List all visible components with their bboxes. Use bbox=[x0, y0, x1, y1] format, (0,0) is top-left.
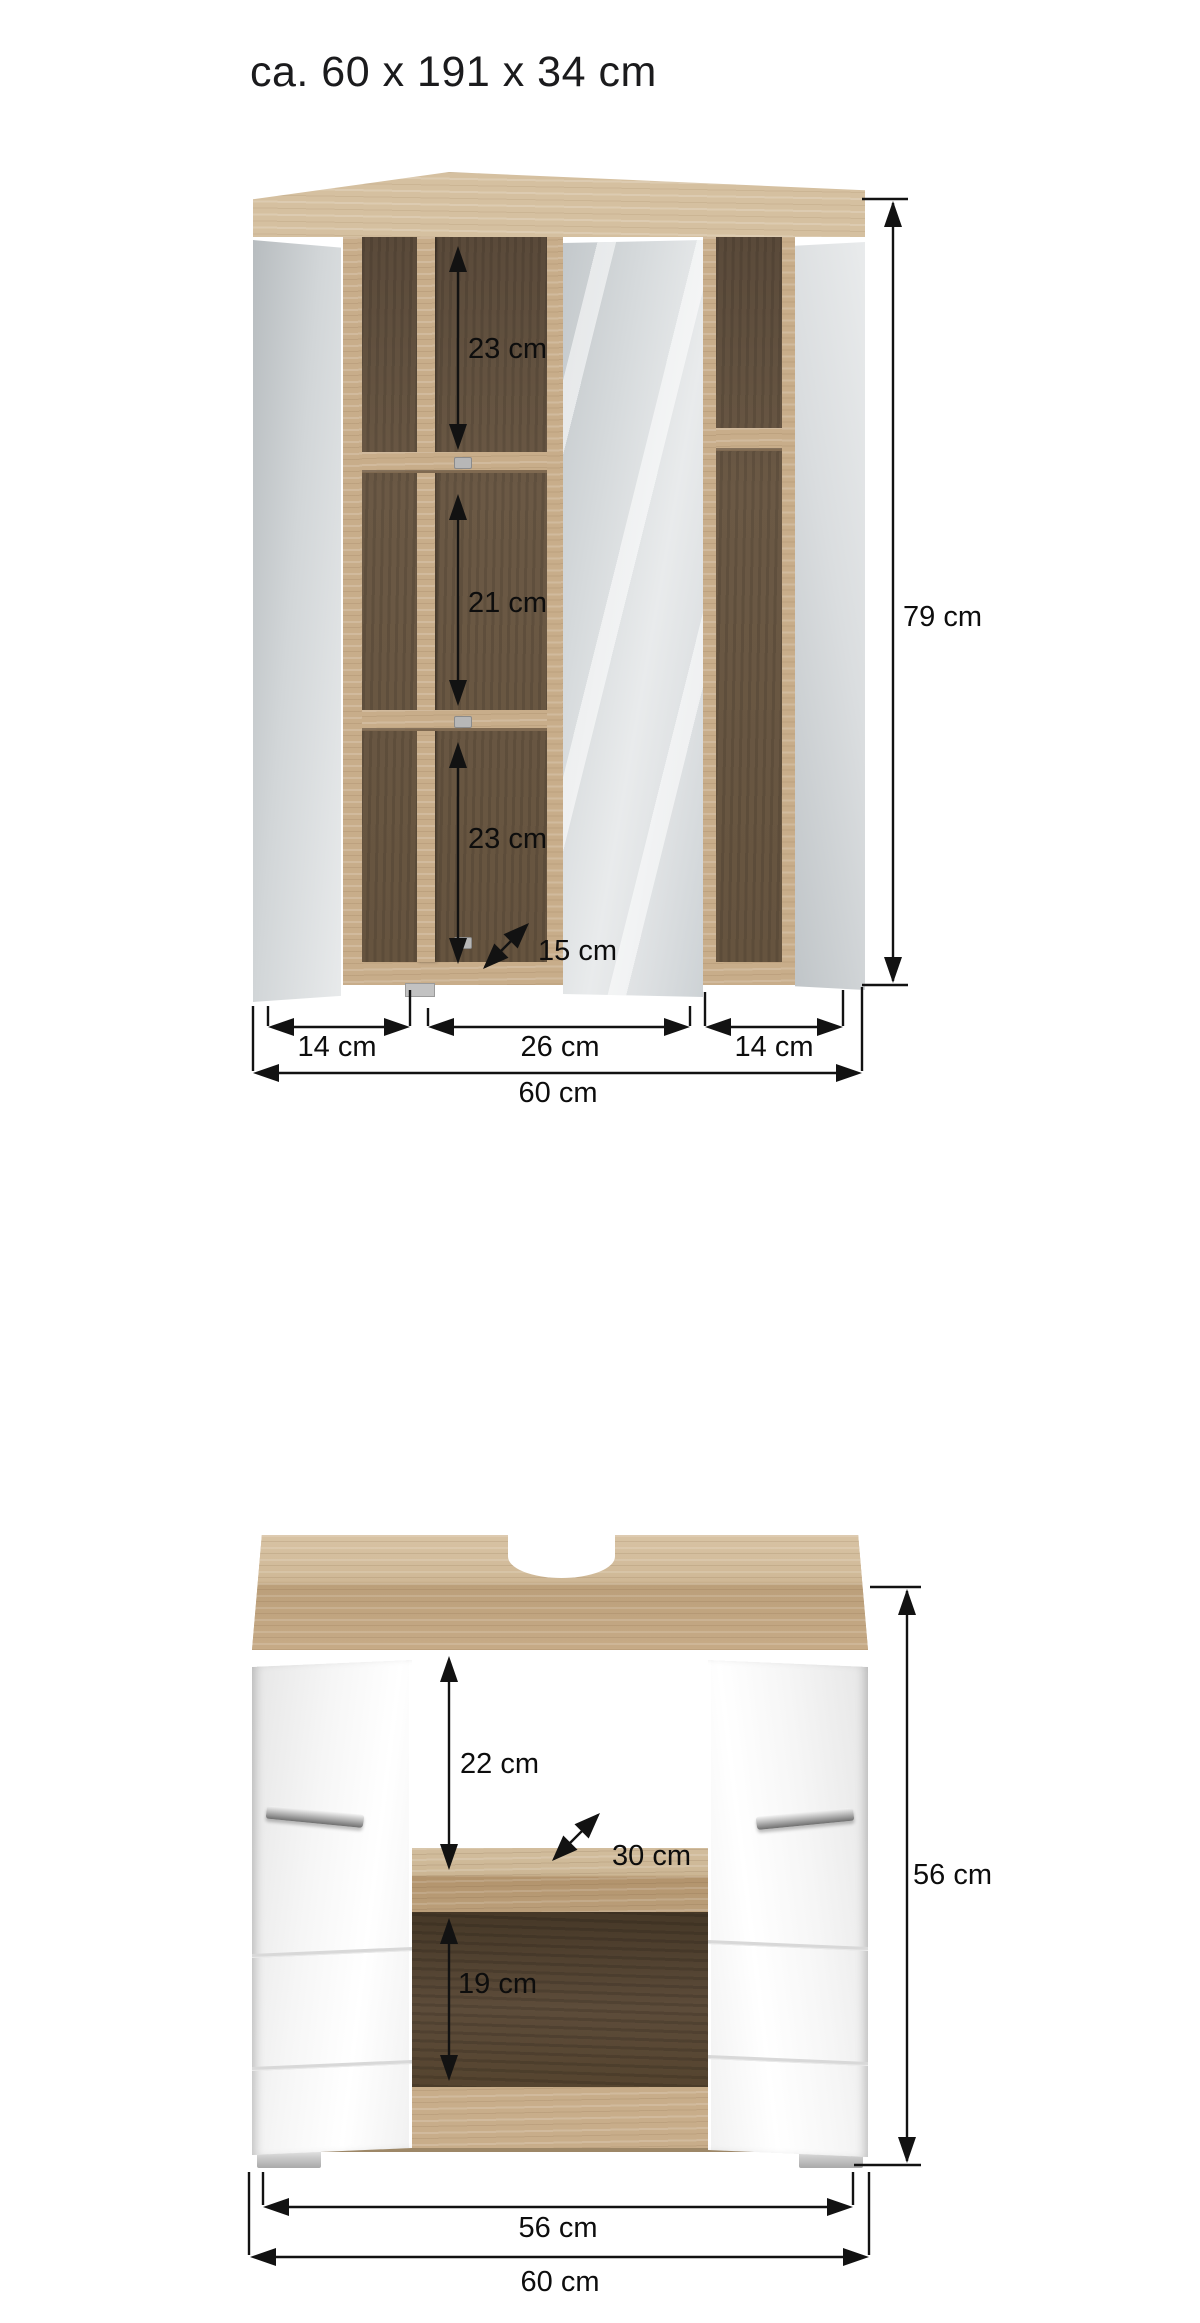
vanity-left-door bbox=[252, 1660, 412, 2155]
dim-label-inner-width: 56 cm bbox=[498, 2212, 618, 2244]
dim-label-shelf-gap-1: 23 cm bbox=[468, 333, 547, 365]
dim-label-depth: 15 cm bbox=[538, 935, 617, 967]
mirror-cabinet-top-panel bbox=[253, 172, 865, 237]
door-groove bbox=[252, 1947, 412, 1958]
dim-label-width-right: 14 cm bbox=[714, 1031, 834, 1063]
hinge-icon bbox=[454, 716, 472, 728]
page-title: ca. 60 x 191 x 34 cm bbox=[250, 48, 657, 96]
dim-label-width-left: 14 cm bbox=[277, 1031, 397, 1063]
door-groove bbox=[252, 2060, 412, 2071]
dim-label-total-width: 60 cm bbox=[498, 1077, 618, 1109]
dimension-diagram-page: ca. 60 x 191 x 34 cm bbox=[0, 0, 1200, 2323]
dim-label-total-width: 60 cm bbox=[500, 2266, 620, 2298]
hinge-icon bbox=[454, 937, 472, 949]
shelf bbox=[716, 428, 782, 451]
mirror-cabinet-open-compartment-right bbox=[703, 237, 795, 985]
mirror-cabinet-left-door bbox=[253, 240, 341, 1002]
dim-label-height: 56 cm bbox=[913, 1859, 992, 1891]
door-groove bbox=[708, 1940, 868, 1951]
door-handle-icon bbox=[266, 1806, 365, 1828]
dim-label-depth: 30 cm bbox=[612, 1840, 691, 1872]
sink-pipe-notch bbox=[508, 1535, 615, 1578]
vanity-lower-compartment bbox=[412, 1912, 708, 2087]
vanity-right-door bbox=[708, 1660, 868, 2157]
dim-label-width-center: 26 cm bbox=[500, 1031, 620, 1063]
mirror-cabinet-right-door bbox=[795, 242, 865, 990]
dim-arrow-60cm-bottom-figure bbox=[250, 2248, 869, 2266]
door-hinge-plate bbox=[405, 983, 435, 997]
compartment-interior bbox=[716, 237, 782, 962]
mirror-cabinet-figure: 23 cm 21 cm 23 cm 15 cm 79 cm 14 cm 26 c… bbox=[0, 0, 1200, 757]
dim-arrow-22cm bbox=[440, 1656, 458, 1870]
dim-label-upper-gap: 22 cm bbox=[460, 1748, 539, 1780]
dim-label-height: 79 cm bbox=[903, 601, 982, 633]
vertical-divider bbox=[417, 237, 435, 962]
mirror-cabinet-center-door bbox=[563, 240, 703, 997]
door-handle-icon bbox=[756, 1808, 855, 1830]
dim-label-shelf-gap-2: 21 cm bbox=[468, 587, 547, 619]
dim-label-shelf-gap-3: 23 cm bbox=[468, 823, 547, 855]
dim-label-lower-gap: 19 cm bbox=[458, 1968, 537, 2000]
hinge-icon bbox=[454, 457, 472, 469]
door-groove bbox=[708, 2055, 868, 2066]
